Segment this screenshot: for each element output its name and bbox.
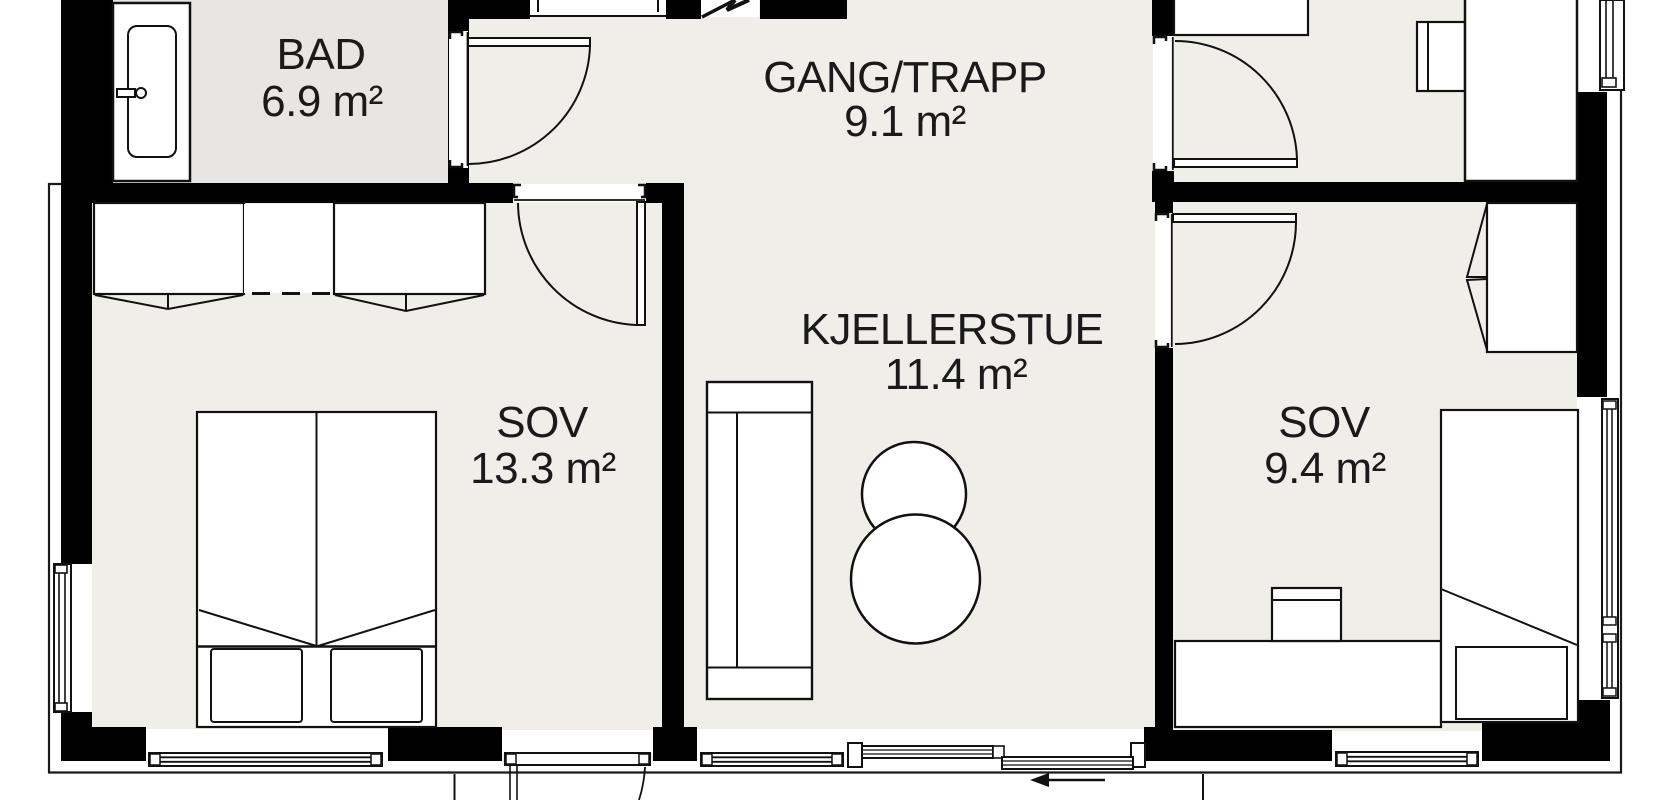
svg-text:SOV: SOV — [496, 398, 589, 447]
svg-text:GANG/TRAPP: GANG/TRAPP — [763, 53, 1047, 102]
svg-text:9.1 m²: 9.1 m² — [844, 97, 966, 146]
svg-text:BAD: BAD — [277, 30, 366, 79]
svg-text:9.4 m²: 9.4 m² — [1264, 444, 1386, 493]
svg-text:SOV: SOV — [1278, 398, 1371, 447]
svg-text:11.4 m²: 11.4 m² — [885, 350, 1027, 399]
svg-text:13.3 m²: 13.3 m² — [470, 444, 616, 493]
svg-text:KJELLERSTUE: KJELLERSTUE — [801, 305, 1104, 354]
svg-text:6.9 m²: 6.9 m² — [261, 77, 383, 126]
